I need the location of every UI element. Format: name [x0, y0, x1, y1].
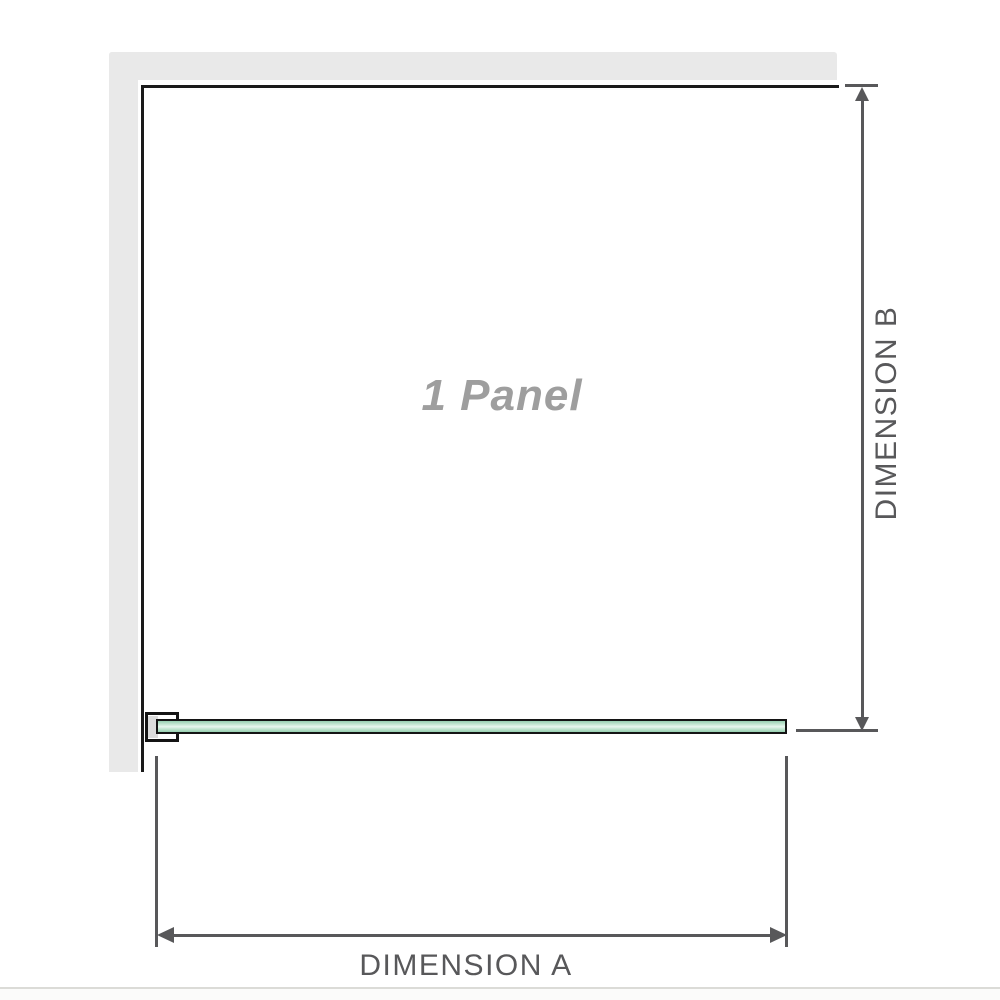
below-divider-area [0, 989, 1000, 1000]
dimension-a-line [168, 934, 778, 937]
dimension-a-right-extension-line [785, 756, 788, 947]
dimension-a-left-extension-line [155, 756, 158, 947]
panel-frame-left-line [141, 85, 144, 772]
dimension-a-label: DIMENSION A [316, 948, 616, 984]
arrow-right-icon [770, 927, 787, 943]
wall-top [109, 52, 837, 80]
arrow-up-icon [855, 87, 869, 101]
wall-left [109, 52, 138, 772]
glass-panel [156, 719, 787, 734]
dimension-b-line [861, 98, 864, 720]
shower-screen-dimension-diagram: 1 Panel DIMENSION B DIMENSION A [0, 0, 1000, 1000]
panel-frame-top-line [141, 85, 839, 88]
arrow-left-icon [157, 927, 174, 943]
arrow-down-icon [855, 717, 869, 731]
dimension-b-label: DIMENSION B [867, 263, 907, 563]
panel-count-label: 1 Panel [352, 368, 652, 424]
